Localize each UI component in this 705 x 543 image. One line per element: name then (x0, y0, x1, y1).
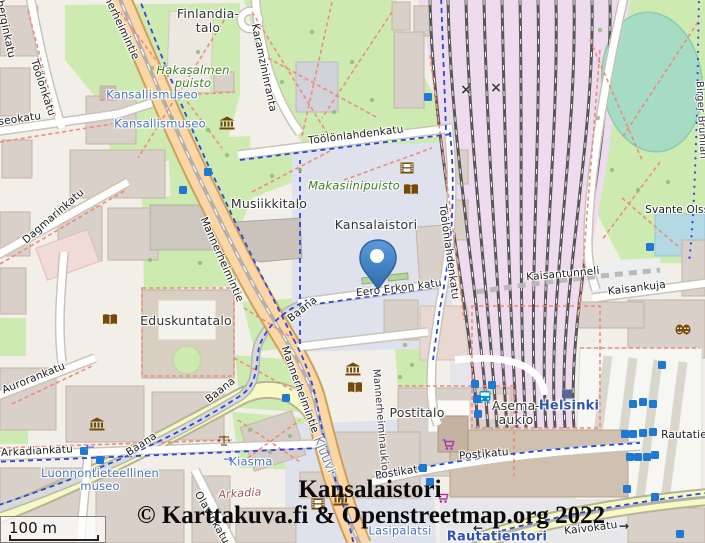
map-base-graphics (0, 0, 705, 543)
map-canvas[interactable]: Finlandia- taloHakasalmen puistoKansalli… (0, 0, 705, 543)
scale-bar: 100 m (0, 516, 106, 543)
scale-bar-line (9, 535, 99, 541)
location-marker-pin[interactable] (358, 239, 398, 291)
